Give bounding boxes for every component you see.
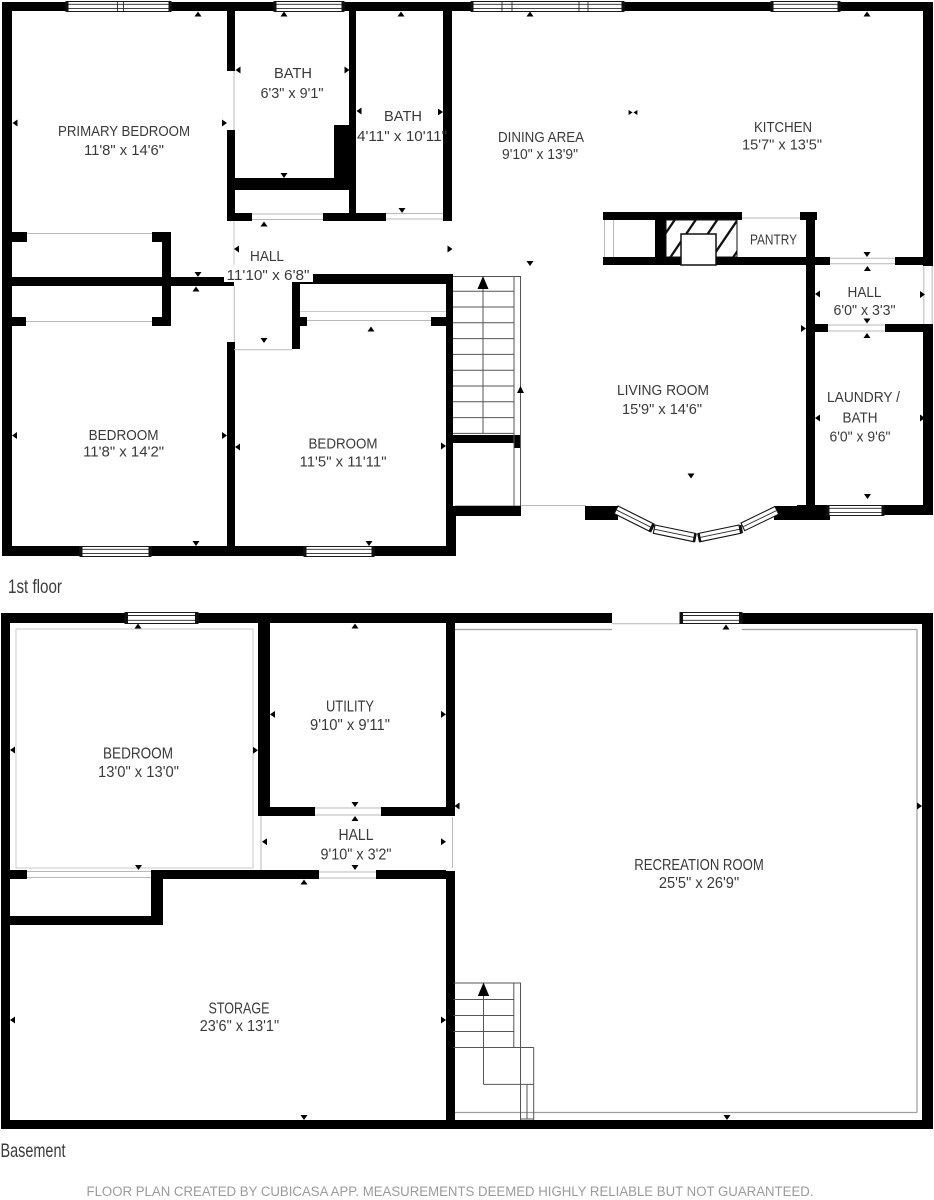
svg-text:15'7" x 13'5": 15'7" x 13'5" — [742, 138, 822, 154]
svg-text:25'5" x 26'9": 25'5" x 26'9" — [659, 875, 739, 892]
svg-text:11'5" x 11'11": 11'5" x 11'11" — [300, 455, 387, 471]
svg-text:11'8" x 14'2": 11'8" x 14'2" — [83, 445, 164, 461]
svg-text:STORAGE: STORAGE — [209, 1001, 270, 1018]
svg-text:6'3" x 9'1": 6'3" x 9'1" — [261, 86, 324, 102]
svg-text:11'8" x 14'6": 11'8" x 14'6" — [84, 143, 164, 159]
svg-text:11'10" x 6'8": 11'10" x 6'8" — [227, 268, 310, 284]
svg-text:DINING AREA: DINING AREA — [498, 130, 584, 146]
svg-text:LAUNDRY /: LAUNDRY / — [827, 390, 901, 406]
svg-text:HALL: HALL — [339, 827, 374, 844]
svg-text:RECREATION ROOM: RECREATION ROOM — [634, 857, 764, 874]
svg-text:FLOOR PLAN CREATED BY CUBICASA: FLOOR PLAN CREATED BY CUBICASA APP. MEAS… — [87, 1184, 814, 1199]
svg-text:BEDROOM: BEDROOM — [309, 437, 378, 453]
svg-text:Basement: Basement — [1, 1140, 66, 1162]
svg-text:LIVING ROOM: LIVING ROOM — [617, 383, 709, 399]
svg-text:1st floor: 1st floor — [8, 576, 62, 598]
svg-text:PRIMARY BEDROOM: PRIMARY BEDROOM — [58, 124, 190, 140]
svg-text:BEDROOM: BEDROOM — [103, 746, 173, 763]
svg-text:PANTRY: PANTRY — [750, 233, 797, 249]
svg-text:BATH: BATH — [384, 109, 422, 125]
svg-text:6'0" x 9'6": 6'0" x 9'6" — [830, 430, 891, 446]
svg-text:KITCHEN: KITCHEN — [754, 120, 812, 136]
svg-text:23'6" x 13'1": 23'6" x 13'1" — [200, 1018, 279, 1035]
svg-text:BATH: BATH — [274, 66, 312, 82]
svg-text:HALL: HALL — [250, 249, 284, 265]
svg-text:9'10" x 13'9": 9'10" x 13'9" — [502, 147, 578, 163]
svg-text:UTILITY: UTILITY — [326, 699, 374, 716]
svg-text:HALL: HALL — [848, 285, 882, 301]
svg-text:4'11" x 10'11": 4'11" x 10'11" — [357, 129, 447, 145]
svg-text:15'9" x 14'6": 15'9" x 14'6" — [622, 402, 702, 418]
svg-text:9'10" x 9'11": 9'10" x 9'11" — [310, 717, 390, 734]
svg-text:BATH: BATH — [843, 411, 878, 427]
svg-text:9'10" x 3'2": 9'10" x 3'2" — [321, 846, 392, 863]
svg-text:13'0" x 13'0": 13'0" x 13'0" — [98, 764, 179, 781]
svg-text:BEDROOM: BEDROOM — [89, 428, 159, 444]
svg-text:6'0" x 3'3": 6'0" x 3'3" — [834, 303, 896, 319]
